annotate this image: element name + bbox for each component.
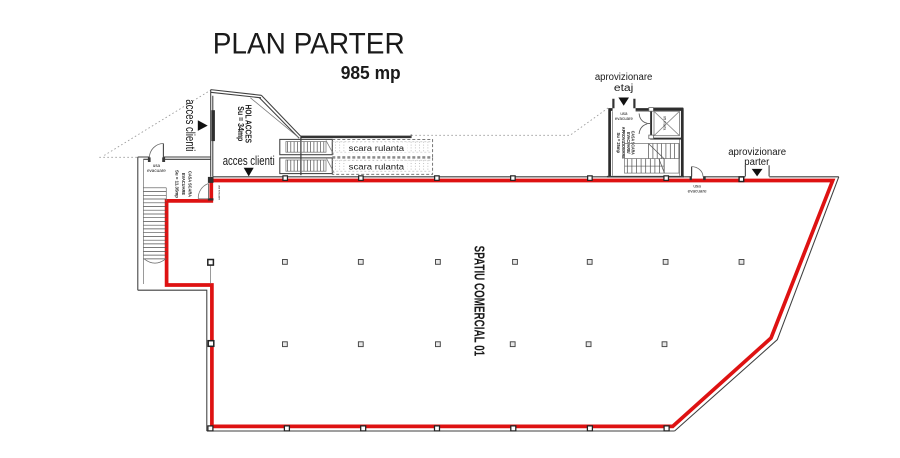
svg-text:evacuare: evacuare xyxy=(688,188,707,193)
svg-text:aprovizionare: aprovizionare xyxy=(595,72,653,83)
svg-text:PLAN PARTER: PLAN PARTER xyxy=(213,29,405,61)
svg-text:evacuare: evacuare xyxy=(147,168,166,173)
svg-text:acces clienti: acces clienti xyxy=(183,99,198,151)
svg-text:SPATIU COMERCIAL 01: SPATIU COMERCIAL 01 xyxy=(471,246,487,357)
svg-text:scara rulanta: scara rulanta xyxy=(349,161,405,171)
svg-text:etaj: etaj xyxy=(614,83,634,94)
svg-text:EVACUARE: EVACUARE xyxy=(180,173,186,196)
svg-text:lift marfa: lift marfa xyxy=(663,116,667,130)
svg-text:evacuare: evacuare xyxy=(615,116,634,121)
svg-text:CASA SCARA: CASA SCARA xyxy=(186,171,192,197)
svg-text:985 mp: 985 mp xyxy=(341,62,401,83)
svg-text:Su = 25mp: Su = 25mp xyxy=(616,133,621,154)
svg-text:Su = 34mp: Su = 34mp xyxy=(236,106,245,141)
svg-text:parter: parter xyxy=(744,157,770,168)
svg-text:usa evacuare: usa evacuare xyxy=(218,185,222,200)
svg-text:Su = 11.35mp: Su = 11.35mp xyxy=(174,170,180,198)
svg-text:acces clienti: acces clienti xyxy=(223,154,275,168)
svg-text:scara rulanta: scara rulanta xyxy=(349,143,405,153)
